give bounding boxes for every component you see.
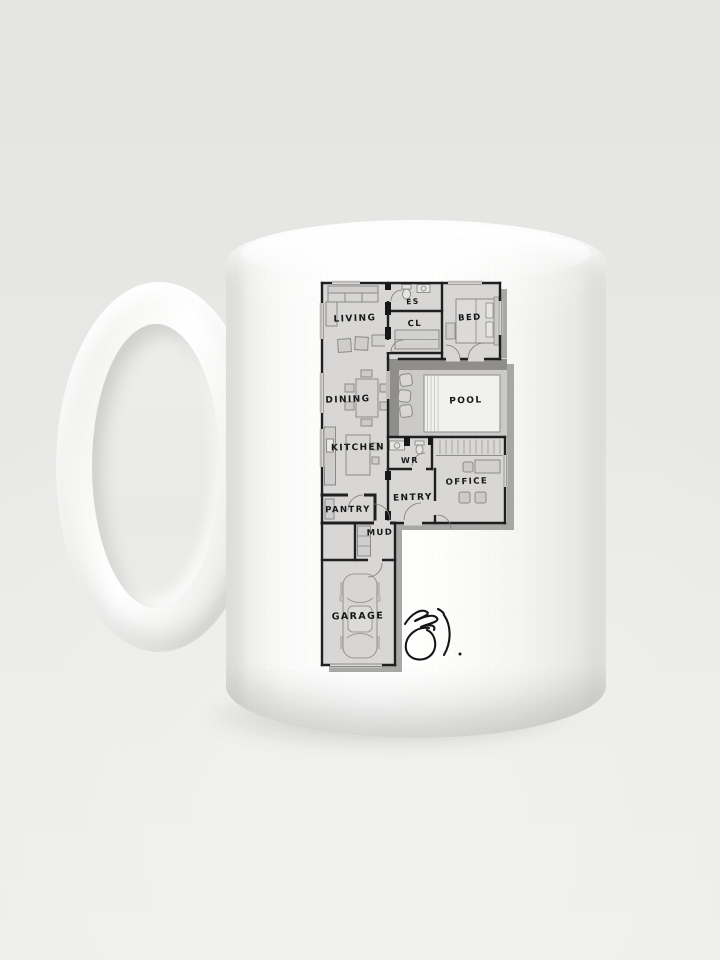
room-label-es: ES	[406, 297, 420, 307]
room-label-wr: WR	[401, 456, 419, 466]
room-label-living: LIVING	[333, 313, 376, 324]
kitchen-counter	[325, 427, 336, 485]
room-label-dining: DINING	[325, 394, 370, 406]
room-label-cl: CL	[408, 319, 423, 329]
sofa-back	[328, 286, 378, 293]
kitchen-island	[346, 435, 370, 475]
desk	[475, 460, 500, 473]
mug-body: LIVING ES CL BED DINING POOL KITCHEN WR …	[226, 220, 606, 738]
pool-loungers	[398, 373, 413, 417]
artist-signature	[405, 609, 462, 660]
sofa-seat	[328, 293, 378, 302]
room-label-bed: BED	[458, 312, 482, 323]
dresser	[446, 323, 455, 339]
room-label-mud: MUD	[366, 528, 393, 539]
toilet-tank	[402, 285, 411, 290]
room-label-kitchen: KITCHEN	[331, 443, 385, 454]
coffee-table	[372, 335, 386, 346]
desk-chair	[463, 462, 473, 472]
room-label-garage: GARAGE	[332, 611, 385, 623]
product-photo: LIVING ES CL BED DINING POOL KITCHEN WR …	[0, 0, 720, 960]
room-label-pantry: PANTRY	[325, 505, 371, 516]
ottoman	[355, 337, 369, 351]
room-label-pool: POOL	[449, 395, 483, 406]
mug-handle-hole	[92, 324, 220, 608]
closet-wardrobe	[395, 330, 439, 349]
floor-plan-print: LIVING ES CL BED DINING POOL KITCHEN WR …	[300, 273, 520, 673]
room-label-entry: ENTRY	[393, 492, 433, 503]
ottoman	[338, 339, 352, 353]
room-label-office: OFFICE	[446, 476, 489, 487]
